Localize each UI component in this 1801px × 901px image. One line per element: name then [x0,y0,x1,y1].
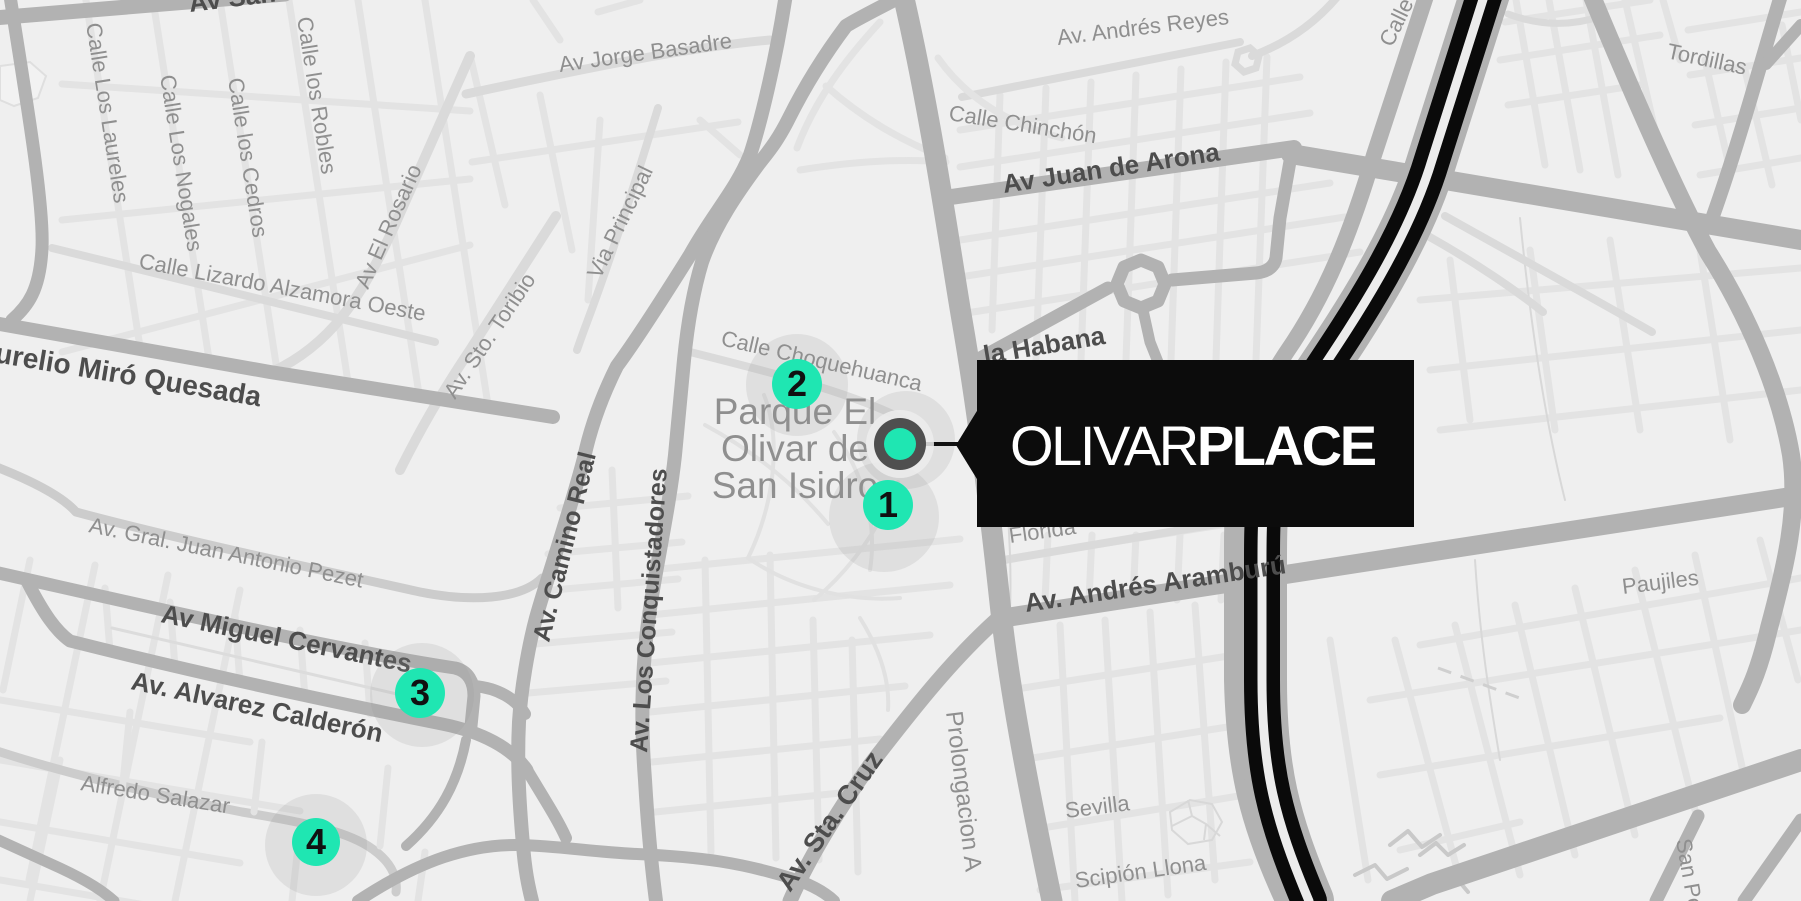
svg-text:2: 2 [787,363,807,404]
svg-text:4: 4 [306,821,326,862]
svg-text:OLIVARPLACE: OLIVARPLACE [1010,414,1376,477]
svg-text:3: 3 [410,672,430,713]
svg-text:1: 1 [878,484,898,525]
